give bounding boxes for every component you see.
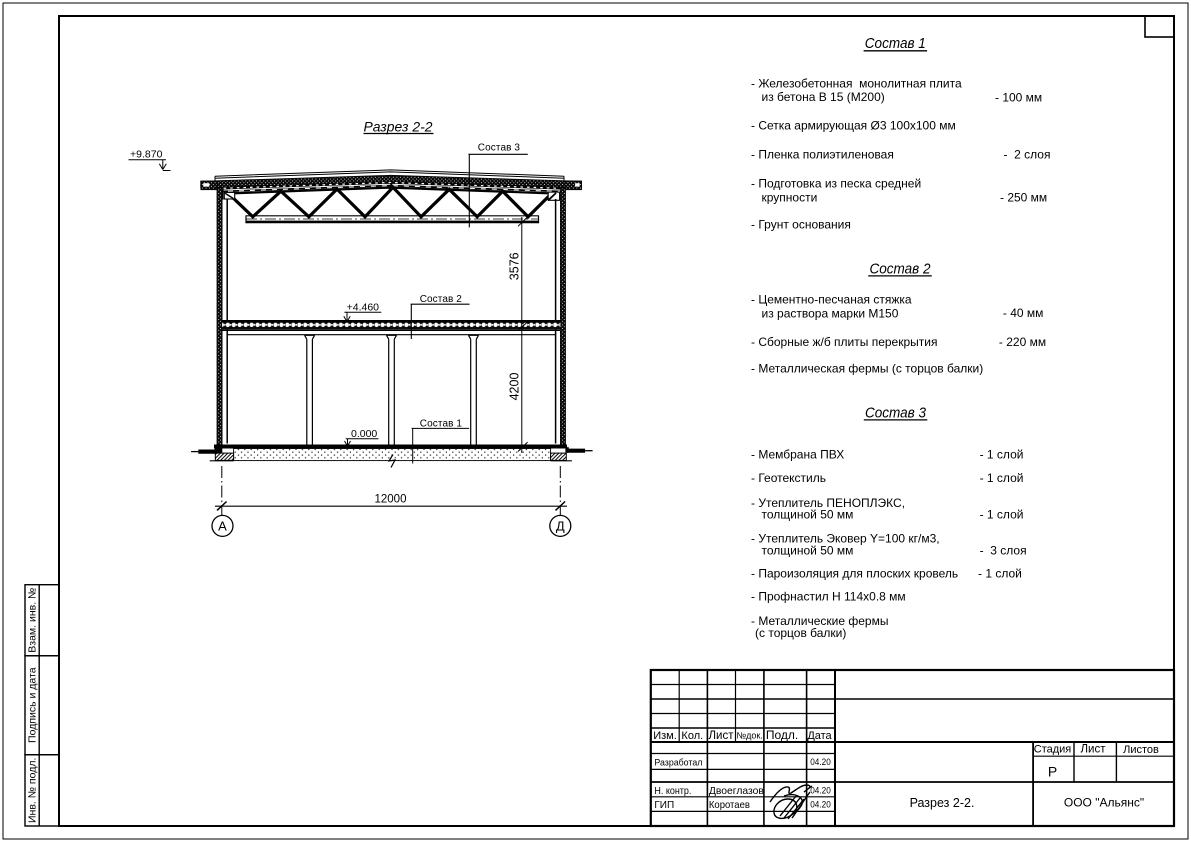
svg-text:- Грунт основания: - Грунт основания: [751, 218, 851, 232]
svg-text:Д: Д: [556, 519, 565, 534]
svg-text:3576: 3576: [508, 252, 522, 280]
svg-text:из раствора марки М150: из раствора марки М150: [762, 307, 899, 321]
svg-text:Двоеглазов: Двоеглазов: [709, 785, 764, 797]
svg-text:- Пароизоляция для плоских кро: - Пароизоляция для плоских кровель: [751, 567, 958, 581]
svg-text:Разрез 2-2.: Разрез 2-2.: [910, 796, 975, 810]
svg-text:ГИП: ГИП: [654, 800, 674, 811]
svg-text:(с торцов балки): (с торцов балки): [755, 626, 846, 640]
svg-text:04.20: 04.20: [810, 786, 831, 797]
svg-text:Стадия: Стадия: [1034, 744, 1072, 756]
svg-text:- Подготовка из песка средней: - Подготовка из песка средней: [751, 177, 921, 191]
svg-text:Коротаев: Коротаев: [709, 799, 750, 811]
svg-text:крупности: крупности: [762, 191, 818, 205]
svg-text:А: А: [218, 519, 227, 534]
svg-text:+4.460: +4.460: [347, 301, 380, 313]
svg-text:Состав 3: Состав 3: [865, 405, 926, 421]
svg-text:- Профнастил Н 114х0.8 мм: - Профнастил Н 114х0.8 мм: [751, 590, 906, 604]
svg-text:- Сборные ж/б плиты перекрытия: - Сборные ж/б плиты перекрытия: [751, 335, 937, 349]
svg-text:- 1 слой: - 1 слой: [980, 471, 1024, 485]
svg-text:- 1 слой: - 1 слой: [980, 508, 1024, 522]
svg-text:- 250 мм: - 250 мм: [1000, 191, 1047, 205]
svg-text:- 1 слой: - 1 слой: [978, 567, 1022, 581]
svg-text:Состав 3: Состав 3: [478, 143, 521, 154]
svg-text:- Металлическая фермы (с торцо: - Металлическая фермы (с торцов балки): [751, 362, 983, 376]
svg-text:Подл.: Подл.: [766, 728, 798, 742]
svg-text:Инв. № подл.: Инв. № подл.: [27, 758, 39, 823]
svg-text:- Сетка армирующая Ø3 100х100: - Сетка армирующая Ø3 100х100 мм: [751, 119, 956, 133]
svg-text:- 40 мм: - 40 мм: [1003, 306, 1044, 320]
svg-text:4200: 4200: [508, 373, 522, 401]
svg-text:12000: 12000: [375, 494, 407, 506]
svg-text:Р: Р: [1048, 764, 1057, 780]
svg-text:- 2 слоя: - 2 слоя: [1004, 148, 1051, 162]
svg-text:Подпись и дата: Подпись и дата: [27, 667, 39, 743]
svg-text:Разрез 2-2: Разрез 2-2: [364, 119, 433, 135]
svg-text:Изм.: Изм.: [653, 730, 677, 742]
svg-text:Состав 1: Состав 1: [420, 419, 463, 430]
svg-text:№док.: №док.: [737, 731, 763, 741]
svg-text:ООО "Альянс": ООО "Альянс": [1064, 796, 1144, 810]
svg-text:Лист: Лист: [709, 730, 735, 742]
svg-text:- 3 слоя: - 3 слоя: [980, 544, 1027, 558]
svg-text:Дата: Дата: [807, 730, 832, 742]
svg-text:Взам. инв. №: Взам. инв. №: [27, 588, 39, 653]
svg-text:Состав 1: Состав 1: [865, 36, 926, 52]
svg-text:- Пленка полиэтиленовая: - Пленка полиэтиленовая: [751, 148, 894, 162]
svg-text:из бетона В 15 (М200): из бетона В 15 (М200): [762, 90, 885, 104]
svg-text:- Железобетонная монолитная п: - Железобетонная монолитная плита: [751, 77, 962, 91]
svg-text:толщиной 50 мм: толщиной 50 мм: [762, 544, 854, 558]
svg-text:- Мембрана ПВХ: - Мембрана ПВХ: [751, 448, 844, 462]
svg-text:- Геотекстиль: - Геотекстиль: [751, 471, 826, 485]
svg-text:Листов: Листов: [1123, 744, 1159, 756]
svg-text:04.20: 04.20: [810, 800, 831, 811]
svg-text:Состав 2: Состав 2: [870, 261, 931, 277]
svg-text:- 220 мм: - 220 мм: [999, 335, 1046, 349]
svg-text:Состав 2: Состав 2: [420, 294, 463, 305]
svg-text:04.20: 04.20: [810, 757, 831, 768]
svg-text:Н. контр.: Н. контр.: [654, 786, 691, 797]
svg-text:- 100 мм: - 100 мм: [995, 91, 1042, 105]
svg-text:+9.870: +9.870: [130, 149, 163, 161]
svg-text:Лист: Лист: [1081, 744, 1107, 756]
svg-text:Разработал: Разработал: [654, 758, 702, 769]
svg-text:Кол.: Кол.: [681, 730, 703, 742]
svg-text:толщиной 50 мм: толщиной 50 мм: [762, 508, 854, 522]
svg-text:- Цементно-песчаная стяжка: - Цементно-песчаная стяжка: [751, 293, 912, 307]
svg-text:- 1 слой: - 1 слой: [980, 448, 1024, 462]
